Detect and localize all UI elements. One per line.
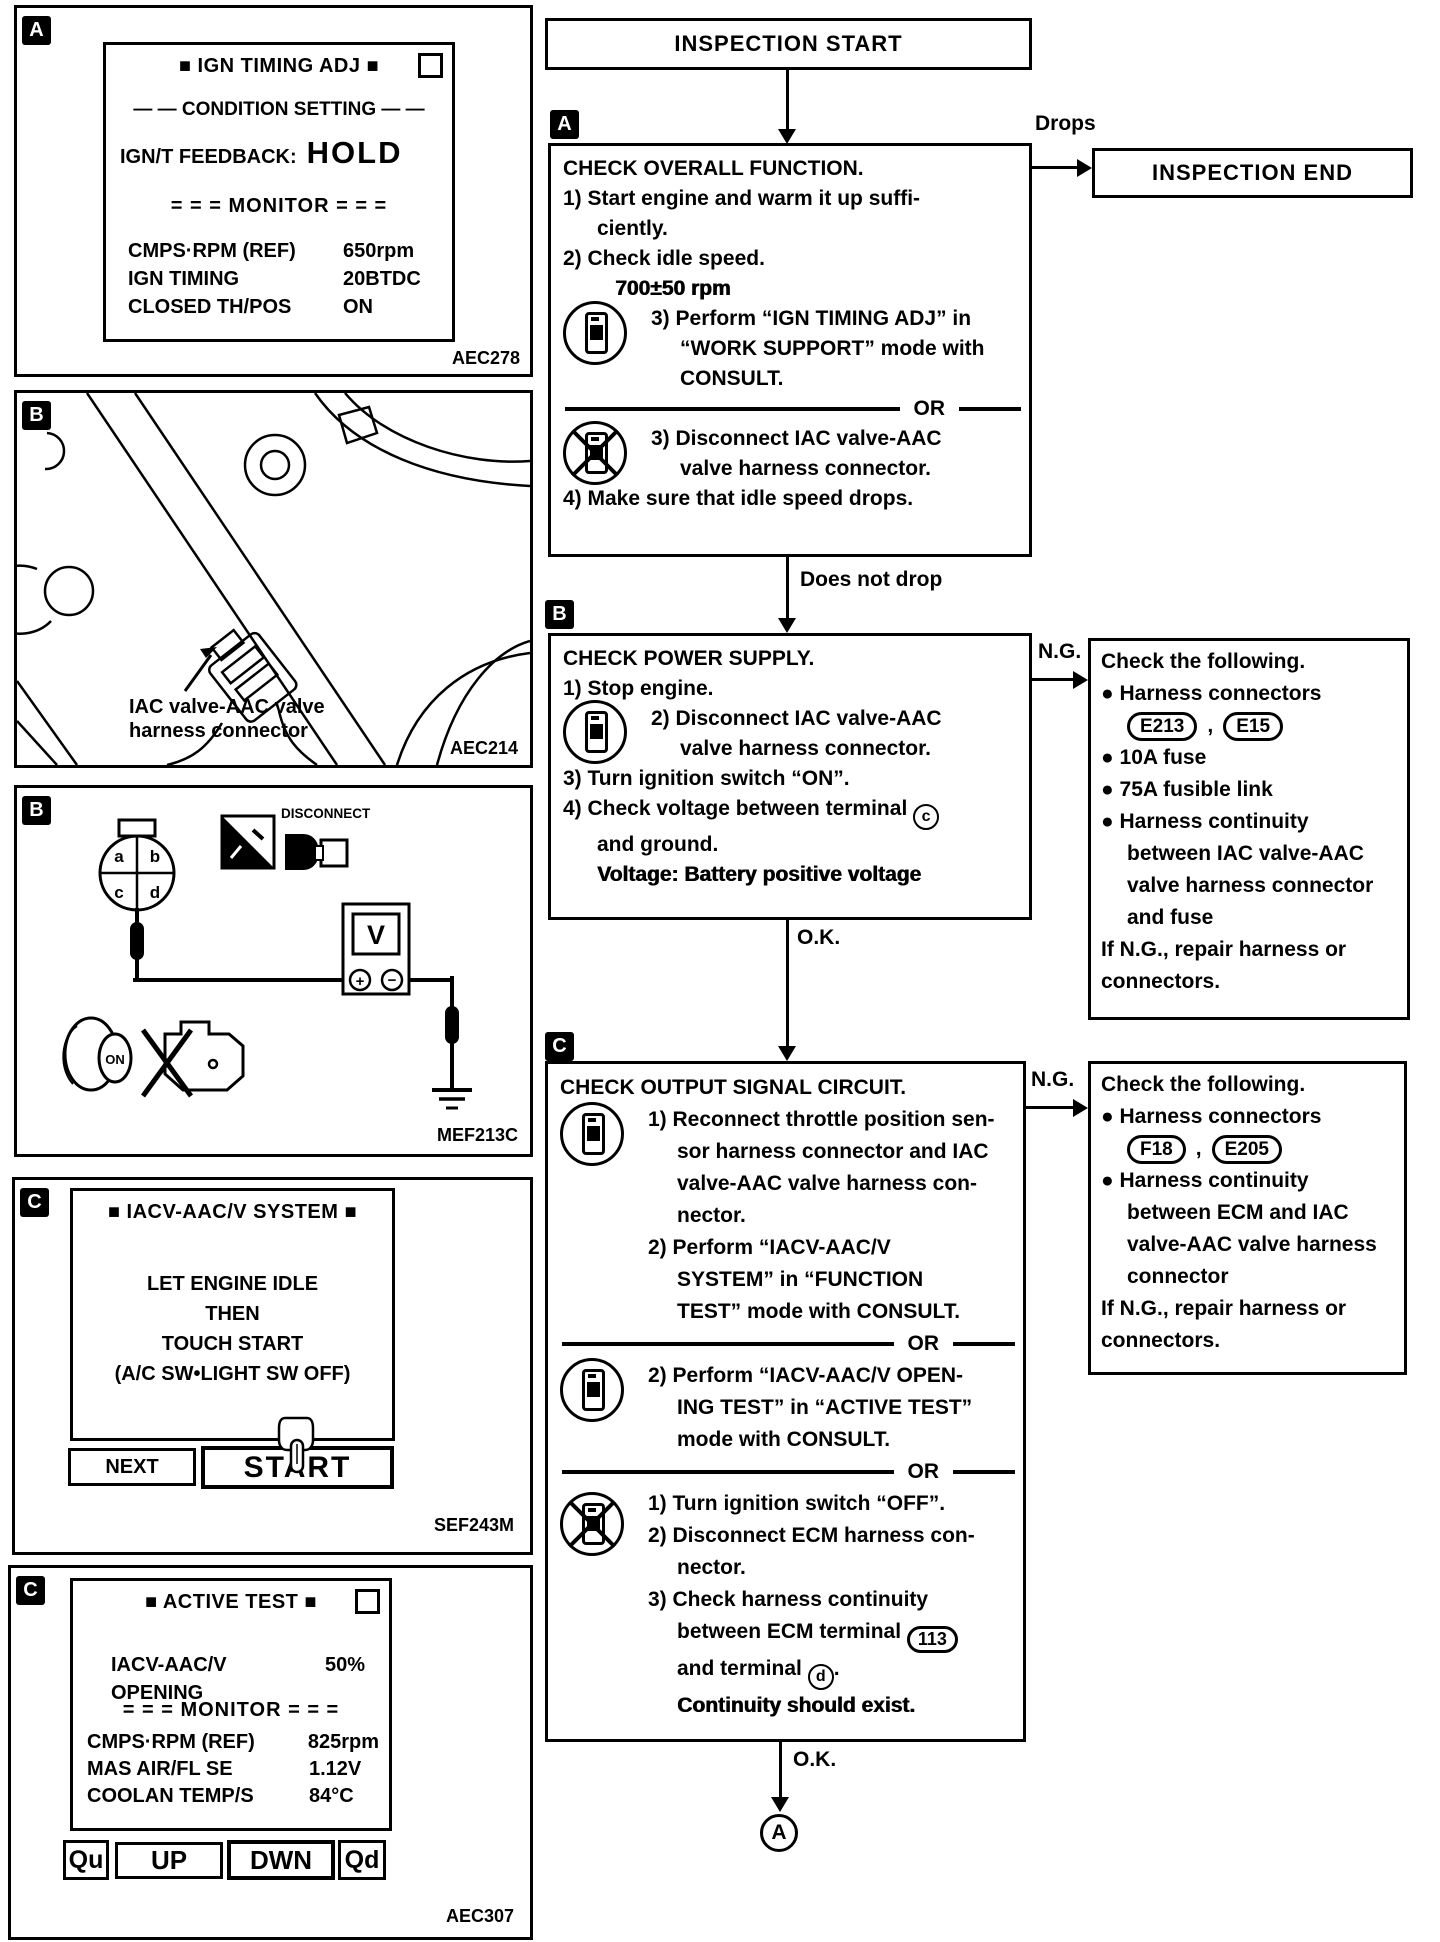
label-ok: O.K.	[793, 1748, 836, 1772]
terminal-badge: 113	[907, 1626, 958, 1653]
arrow-down	[786, 70, 789, 129]
flow-step-line: ING TEST” in “ACTIVE TEST”	[548, 1392, 1023, 1424]
ng-line: and fuse	[1091, 902, 1407, 934]
figure-ign-timing-adj: A ■ IGN TIMING ADJ ■ — — CONDITION SETTI…	[14, 5, 533, 377]
up-button: UP	[115, 1842, 223, 1879]
manual-page: A ■ IGN TIMING ADJ ■ — — CONDITION SETTI…	[0, 0, 1440, 1942]
figure-code: MEF213C	[437, 1125, 518, 1146]
ng-line: between ECM and IAC	[1091, 1197, 1404, 1229]
label-ok: O.K.	[797, 926, 840, 950]
monitor-row: IGN TIMING 20BTDC	[128, 265, 440, 293]
flow-step-line: between ECM terminal 113	[548, 1616, 1023, 1653]
terminal-badge: c	[913, 804, 939, 830]
flow-step-line: 1) Start engine and warm it up suffi-	[551, 184, 1029, 214]
arrow-right	[1032, 678, 1073, 681]
flow-step-line: CHECK OUTPUT SIGNAL CIRCUIT.	[548, 1072, 1023, 1104]
ng-line: connectors.	[1091, 966, 1407, 998]
flow-step-line: SYSTEM” in “FUNCTION	[548, 1264, 1023, 1296]
flow-step-line: 4) Make sure that idle speed drops.	[551, 484, 1029, 514]
monitor-row: CMPS·RPM (REF) 650rpm	[128, 237, 440, 265]
monitor-row-label: COOLAN TEMP/S	[87, 1783, 309, 1810]
flow-step-line: OR	[548, 1456, 1023, 1488]
flow-box-check-power-supply: CHECK POWER SUPPLY. 1) Stop engine. 2) D…	[548, 633, 1032, 920]
figure-tag-a: A	[22, 16, 51, 45]
qd-button: Qd	[338, 1840, 386, 1880]
flow-step-line: nector.	[548, 1552, 1023, 1584]
screen-title: ■ ACTIVE TEST ■	[73, 1591, 389, 1614]
arrowhead-right-icon	[1073, 1099, 1088, 1117]
ng-line: connectors.	[1091, 1325, 1404, 1357]
flow-step-line: OR	[551, 394, 1029, 424]
screen-body-line: THEN	[73, 1299, 392, 1329]
monitor-row: CMPS·RPM (REF) 825rpm	[87, 1729, 379, 1756]
flow-step-line: “WORK SUPPORT” mode with	[551, 334, 1029, 364]
ng-box-power-supply: Check the following.● Harness connectors…	[1088, 638, 1410, 1020]
figure-iacv-aacv-system: C ■ IACV-AAC/V SYSTEM ■ LET ENGINE IDLE …	[12, 1177, 533, 1555]
flow-tag-a: A	[550, 110, 579, 139]
flow-tag-b: B	[545, 600, 574, 629]
ng-line: If N.G., repair harness or	[1091, 934, 1407, 966]
wiring-diagram: a b c d DISCONNECT V + − ON	[17, 788, 530, 1154]
touch-hand-icon	[277, 1414, 317, 1476]
ng-line: Check the following.	[1091, 1069, 1404, 1101]
feedback-row: IGN/T FEEDBACK: HOLD	[120, 135, 403, 171]
flow-step-line: 2) Disconnect IAC valve-AAC	[551, 704, 1029, 734]
figure-active-test: C ■ ACTIVE TEST ■ IACV-AAC/V 50% OPENING…	[8, 1565, 533, 1940]
qu-button: Qu	[63, 1840, 109, 1880]
monitor-row-label: CMPS·RPM (REF)	[87, 1729, 308, 1756]
parameter-value: 50%	[325, 1651, 365, 1679]
monitor-row-value: 20BTDC	[343, 265, 421, 293]
figure-iac-valve-location: B	[14, 390, 533, 768]
flow-step-line: OR	[548, 1328, 1023, 1360]
screen-body-line: LET ENGINE IDLE	[73, 1269, 392, 1299]
ng-line: ● 10A fuse	[1091, 742, 1407, 774]
arrowhead-down-icon	[778, 618, 796, 633]
arrowhead-right-icon	[1073, 671, 1088, 689]
flow-tag-c: C	[545, 1032, 574, 1061]
pin-label-c: c	[114, 883, 123, 902]
flow-step-line: ciently.	[551, 214, 1029, 244]
flow-step-line: 1) Reconnect throttle position sen-	[548, 1104, 1023, 1136]
figure-tag-c: C	[16, 1576, 45, 1605]
flow-step-line: 4) Check voltage between terminal c	[551, 794, 1029, 830]
monitor-row-value: ON	[343, 293, 373, 321]
pin-label-a: a	[114, 847, 124, 866]
monitor-row-value: 650rpm	[343, 237, 414, 265]
ng-line: valve-AAC valve harness	[1091, 1229, 1404, 1261]
callout-iac-valve-connector: IAC valve-AAC valve harness connector	[129, 695, 325, 743]
flow-step-line: 700±50 rpm	[551, 274, 1029, 304]
label-ng: N.G.	[1038, 640, 1081, 664]
flow-step-line: mode with CONSULT.	[548, 1424, 1023, 1456]
figure-tag-b: B	[22, 796, 51, 825]
terminal-badge: d	[808, 1664, 834, 1690]
down-button: DWN	[227, 1840, 335, 1880]
separator: ,	[1207, 710, 1213, 742]
monitor-rows: CMPS·RPM (REF) 825rpm MAS AIR/FL SE 1.12…	[87, 1729, 379, 1810]
arrowhead-right-icon	[1077, 159, 1092, 177]
ng-line: connector	[1091, 1261, 1404, 1293]
flow-step-line: TEST” mode with CONSULT.	[548, 1296, 1023, 1328]
screen-checkbox-icon	[355, 1589, 380, 1614]
consult-screen-active-test: ■ ACTIVE TEST ■ IACV-AAC/V 50% OPENING =…	[70, 1578, 392, 1831]
arrow-right	[1032, 166, 1077, 169]
ng-line: ● Harness connectors	[1091, 678, 1407, 710]
monitor-row: CLOSED TH/POS ON	[128, 293, 440, 321]
inspection-start-box: INSPECTION START	[545, 18, 1032, 70]
monitor-row-label: CMPS·RPM (REF)	[128, 237, 343, 265]
screen-title: ■ IGN TIMING ADJ ■	[106, 55, 452, 78]
figure-code: AEC278	[452, 348, 520, 369]
flow-step-line: valve-AAC valve harness con-	[548, 1168, 1023, 1200]
monitor-row-label: CLOSED TH/POS	[128, 293, 343, 321]
label-ng: N.G.	[1031, 1068, 1074, 1092]
screen-body-line: (A/C SW•LIGHT SW OFF)	[73, 1359, 392, 1389]
monitor-divider-label: = = = MONITOR = = =	[106, 195, 452, 218]
flow-box-check-output-signal: CHECK OUTPUT SIGNAL CIRCUIT. 1) Reconnec…	[545, 1061, 1026, 1742]
ng-line: between IAC valve-AAC	[1091, 838, 1407, 870]
figure-code: AEC307	[446, 1906, 514, 1927]
flow-step-line: 3) Check harness continuity	[548, 1584, 1023, 1616]
connector-id-row: F18 , E205	[1091, 1133, 1404, 1165]
screen-title: ■ IACV-AAC/V SYSTEM ■	[73, 1201, 392, 1224]
screen-body-line: TOUCH START	[73, 1329, 392, 1359]
monitor-row: MAS AIR/FL SE 1.12V	[87, 1756, 379, 1783]
ng-box-output-signal: Check the following.● Harness connectors…	[1088, 1061, 1407, 1375]
voltmeter-plus: +	[356, 973, 365, 990]
figure-code: AEC214	[450, 738, 518, 759]
flow-box-check-overall-function: CHECK OVERALL FUNCTION. 1) Start engine …	[548, 143, 1032, 557]
ng-line: ● Harness continuity	[1091, 806, 1407, 838]
pin-label-b: b	[150, 847, 160, 866]
voltmeter-letter: V	[367, 920, 385, 950]
arrow-right	[1026, 1106, 1073, 1109]
flow-step-line: CONSULT.	[551, 364, 1029, 394]
connector-id-badge: E15	[1223, 712, 1283, 741]
voltmeter-minus: −	[388, 972, 397, 989]
figure-tag-b: B	[22, 401, 51, 430]
arrowhead-down-icon	[778, 1046, 796, 1061]
arrow-down	[786, 557, 789, 618]
next-button: NEXT	[68, 1448, 196, 1486]
consult-screen-function-test: ■ IACV-AAC/V SYSTEM ■ LET ENGINE IDLE TH…	[70, 1188, 395, 1441]
label-does-not-drop: Does not drop	[800, 568, 942, 592]
figure-code: SEF243M	[434, 1515, 514, 1536]
flow-step-line: and ground.	[551, 830, 1029, 860]
figure-voltage-check-diagram: B	[14, 785, 533, 1157]
monitor-row-label: IGN TIMING	[128, 265, 343, 293]
screen-checkbox-icon	[418, 53, 443, 78]
flow-step-line: 2) Disconnect ECM harness con-	[548, 1520, 1023, 1552]
monitor-row-value: 825rpm	[308, 1729, 379, 1756]
flow-step-line: sor harness connector and IAC	[548, 1136, 1023, 1168]
monitor-row: COOLAN TEMP/S 84°C	[87, 1783, 379, 1810]
callout-line: harness connector	[129, 719, 325, 743]
flow-step-line: CHECK POWER SUPPLY.	[551, 644, 1029, 674]
ignition-on-label: ON	[105, 1052, 125, 1067]
flow-step-line: 1) Turn ignition switch “OFF”.	[548, 1488, 1023, 1520]
pin-label-d: d	[150, 883, 160, 902]
flow-step-line: CHECK OVERALL FUNCTION.	[551, 154, 1029, 184]
ng-line: If N.G., repair harness or	[1091, 1293, 1404, 1325]
connector-id-badge: E205	[1212, 1135, 1282, 1164]
separator: ,	[1196, 1133, 1202, 1165]
arrow-down	[779, 1742, 782, 1797]
flow-step-line: Voltage: Battery positive voltage	[551, 860, 1029, 890]
flow-step-line: 2) Perform “IACV-AAC/V OPEN-	[548, 1360, 1023, 1392]
screen-body: LET ENGINE IDLE THEN TOUCH START (A/C SW…	[73, 1269, 392, 1389]
ng-line: ● Harness continuity	[1091, 1165, 1404, 1197]
parameter-label: IACV-AAC/V	[111, 1651, 227, 1679]
feedback-label: IGN/T FEEDBACK:	[120, 146, 297, 169]
goto-connector-a: A	[760, 1814, 798, 1852]
arrowhead-down-icon	[778, 129, 796, 144]
condition-setting-label: — — CONDITION SETTING — —	[106, 99, 452, 121]
ng-line: valve harness connector	[1091, 870, 1407, 902]
flow-step-line: and terminal d.	[548, 1653, 1023, 1690]
flow-step-line: valve harness connector.	[551, 454, 1029, 484]
monitor-row-value: 1.12V	[309, 1756, 361, 1783]
flow-step-line: 2) Check idle speed.	[551, 244, 1029, 274]
monitor-row-label: MAS AIR/FL SE	[87, 1756, 309, 1783]
monitor-rows: CMPS·RPM (REF) 650rpm IGN TIMING 20BTDC …	[128, 237, 440, 321]
disconnect-label: DISCONNECT	[281, 806, 371, 821]
label-drops: Drops	[1035, 112, 1096, 136]
arrow-down	[786, 920, 789, 1046]
flow-step-line: 2) Perform “IACV-AAC/V	[548, 1232, 1023, 1264]
callout-line: IAC valve-AAC valve	[129, 695, 325, 719]
inspection-end-box: INSPECTION END	[1092, 148, 1413, 198]
ng-line: ● 75A fusible link	[1091, 774, 1407, 806]
flow-step-line: 3) Perform “IGN TIMING ADJ” in	[551, 304, 1029, 334]
flow-step-line: 3) Disconnect IAC valve-AAC	[551, 424, 1029, 454]
flow-step-line: Continuity should exist.	[548, 1690, 1023, 1722]
connector-id-badge: E213	[1127, 712, 1197, 741]
flow-step-line: valve harness connector.	[551, 734, 1029, 764]
monitor-divider-label: = = = MONITOR = = =	[73, 1699, 389, 1722]
ng-line: Check the following.	[1091, 646, 1407, 678]
monitor-row-value: 84°C	[309, 1783, 354, 1810]
connector-id-badge: F18	[1127, 1135, 1186, 1164]
arrowhead-down-icon	[771, 1797, 789, 1812]
figure-tag-c: C	[20, 1188, 49, 1217]
flow-step-line: 1) Stop engine.	[551, 674, 1029, 704]
connector-id-row: E213 , E15	[1091, 710, 1407, 742]
flow-step-line: nector.	[548, 1200, 1023, 1232]
flow-step-line: 3) Turn ignition switch “ON”.	[551, 764, 1029, 794]
consult-screen-ign-timing: ■ IGN TIMING ADJ ■ — — CONDITION SETTING…	[103, 42, 455, 342]
feedback-value: HOLD	[307, 135, 403, 171]
ng-line: ● Harness connectors	[1091, 1101, 1404, 1133]
